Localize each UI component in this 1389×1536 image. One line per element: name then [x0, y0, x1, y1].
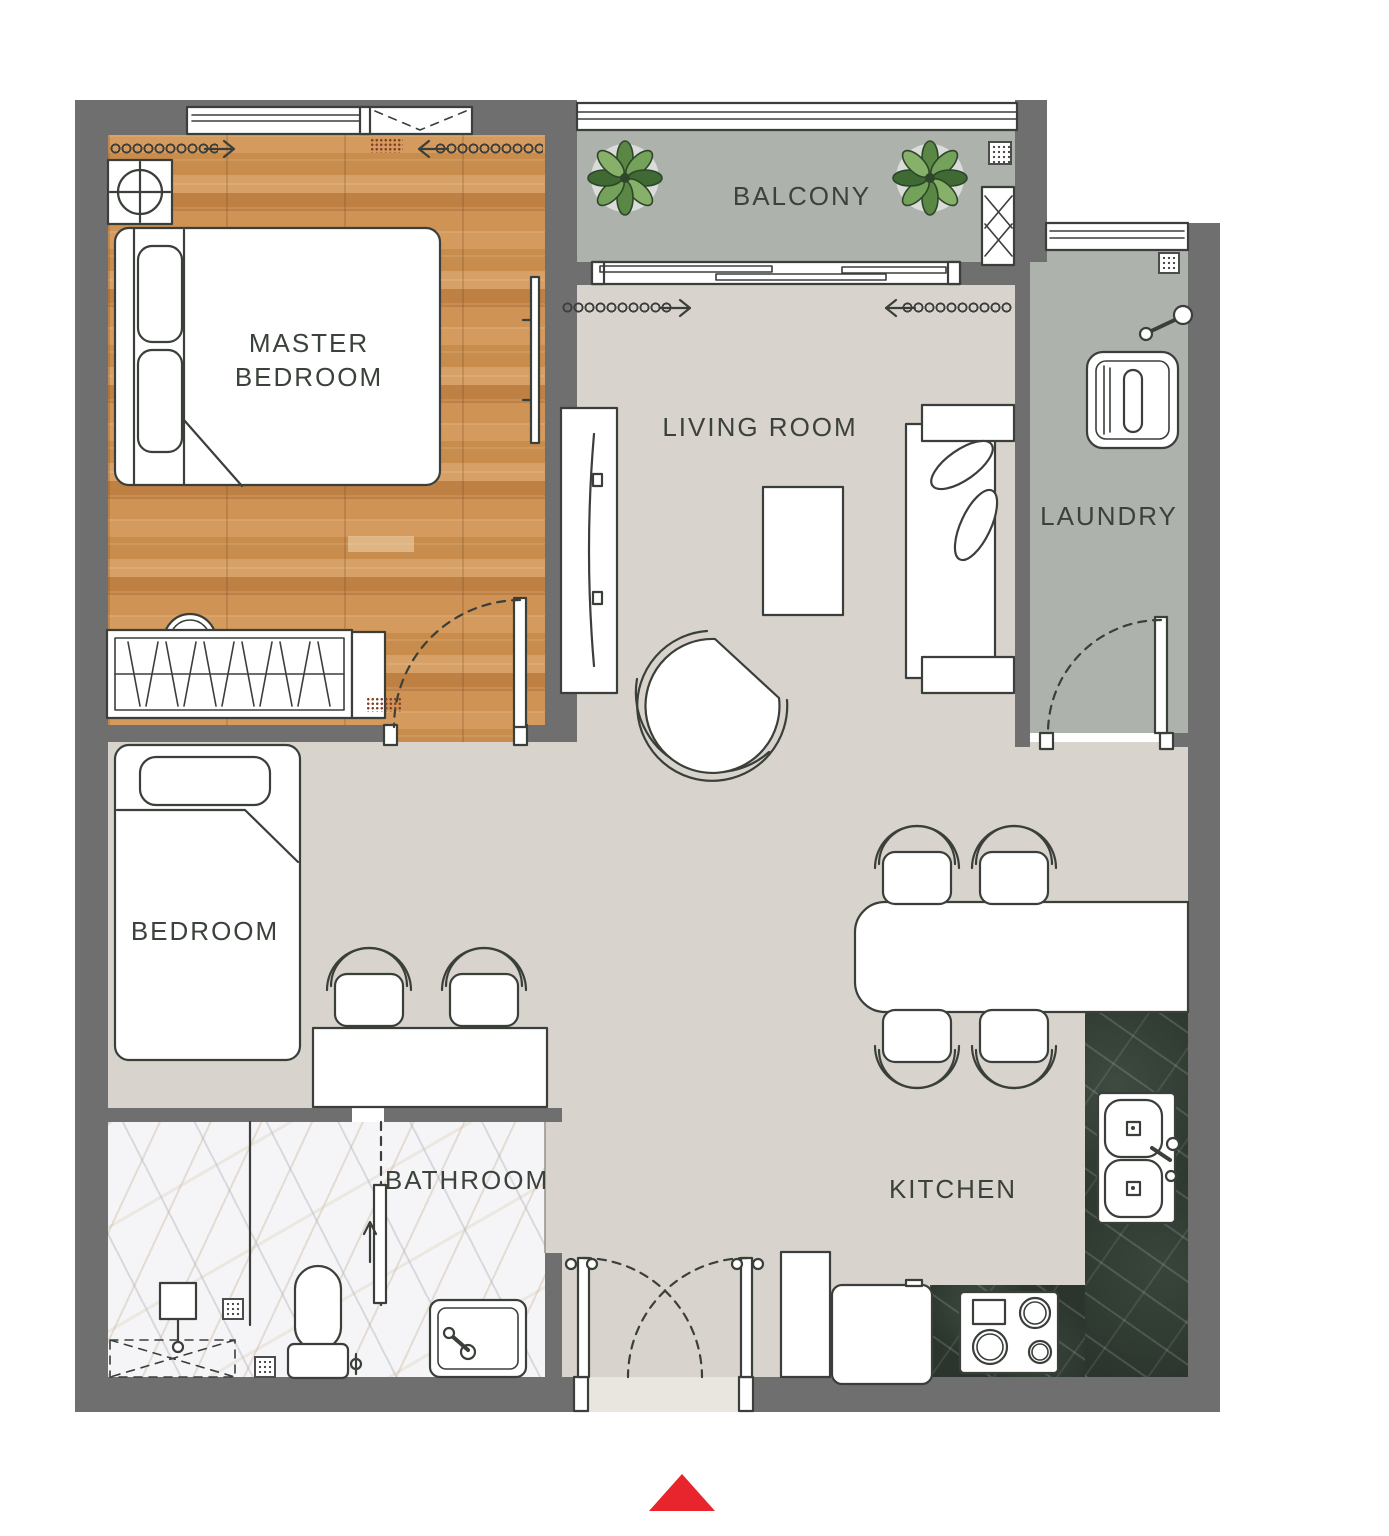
room-label-master-bedroom: MASTER BEDROOM — [235, 327, 383, 395]
chair-icon — [442, 948, 526, 1026]
laundry-window-icon — [1046, 223, 1188, 250]
stove-icon — [960, 1292, 1058, 1373]
curtain-icon — [110, 140, 218, 157]
room-label-living-room: LIVING ROOM — [662, 411, 857, 445]
ac-unit-icon — [982, 187, 1014, 265]
kitchen-sink-icon — [1098, 1093, 1179, 1223]
curtain-icon — [562, 299, 672, 316]
curtain-icon — [902, 299, 1012, 316]
desk-icon — [313, 1028, 547, 1107]
entrance-arrow-icon — [649, 1474, 715, 1511]
armchair-icon — [636, 631, 787, 781]
laundry-door-swing-icon — [1040, 617, 1173, 749]
entrance-door-swing-icon — [566, 1258, 763, 1411]
plant-icon — [893, 141, 967, 215]
tv-icon — [523, 277, 539, 443]
faucet-icon — [1140, 306, 1192, 340]
wardrobe-icon — [107, 630, 385, 718]
ceiling-light-icon — [108, 160, 172, 224]
balcony-railing — [577, 103, 1017, 130]
fridge-icon — [832, 1280, 932, 1384]
room-label-bathroom: BATHROOM — [385, 1164, 549, 1198]
master-window-icon — [187, 107, 472, 134]
curtain-icon — [435, 140, 543, 157]
sliding-door-icon — [592, 262, 960, 284]
room-label-bedroom: BEDROOM — [131, 915, 279, 949]
room-label-laundry: LAUNDRY — [1040, 500, 1178, 534]
washing-machine-icon — [1087, 352, 1178, 448]
drain-icon — [254, 1356, 276, 1378]
room-label-kitchen: KITCHEN — [889, 1173, 1017, 1207]
chair-icon — [327, 948, 411, 1026]
room-label-balcony: BALCONY — [733, 180, 871, 214]
bathroom-fixtures — [110, 1122, 545, 1378]
master-door-swing-icon — [384, 598, 527, 745]
cabinet-icon — [781, 1252, 830, 1377]
sofa-icon — [906, 405, 1014, 693]
chair-icon — [875, 826, 959, 904]
plant-icon — [588, 141, 662, 215]
dining-table-icon — [855, 902, 1188, 1012]
floor-vent-icon — [366, 697, 401, 712]
chair-icon — [972, 1010, 1056, 1088]
tv-console-icon — [561, 408, 617, 693]
floor-plan: MASTER BEDROOM BALCONY LIVING ROOM LAUND… — [0, 0, 1389, 1536]
chair-icon — [972, 826, 1056, 904]
chair-icon — [875, 1010, 959, 1088]
coffee-table-icon — [763, 487, 843, 615]
drain-icon — [988, 141, 1012, 165]
drain-icon — [1158, 252, 1180, 274]
single-bed-icon — [115, 745, 300, 1060]
floorplan-linework — [0, 0, 1389, 1536]
drain-icon — [222, 1298, 244, 1320]
floor-vent-icon — [370, 138, 403, 153]
